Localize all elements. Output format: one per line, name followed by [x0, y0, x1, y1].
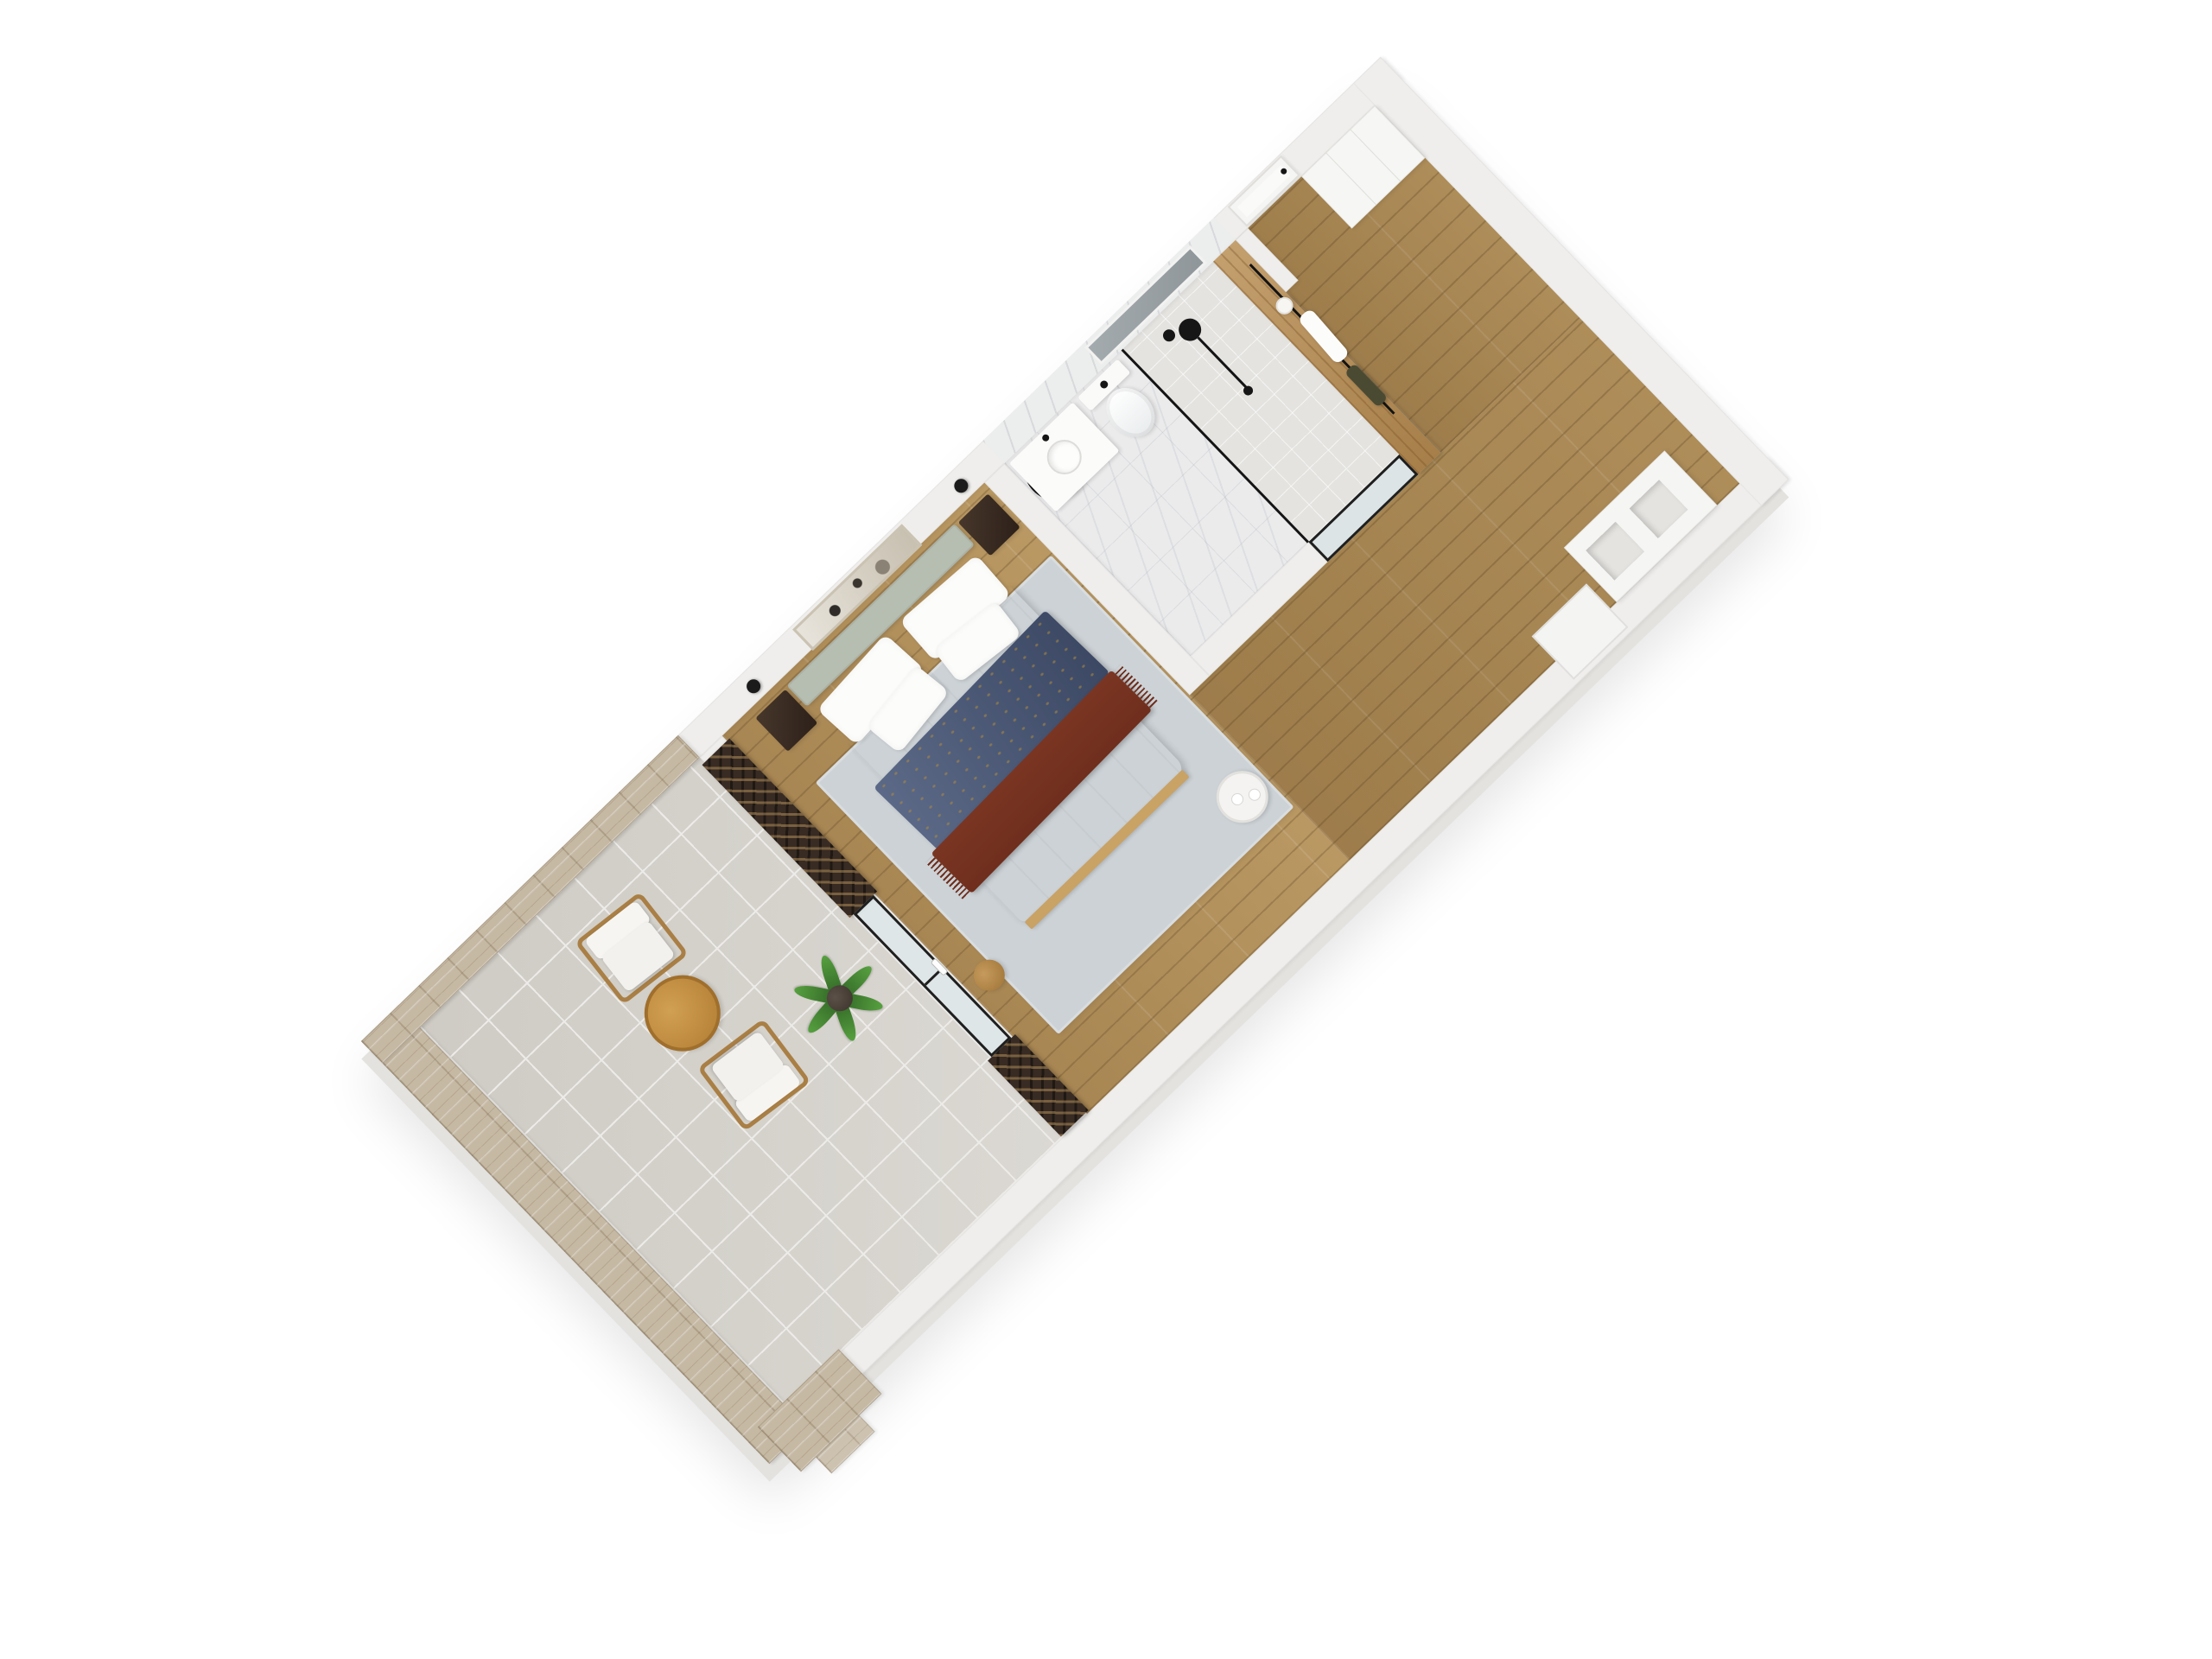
tray-cup — [1229, 791, 1246, 808]
render-canvas — [0, 0, 2212, 1659]
cubby-opening — [1586, 522, 1644, 581]
floor-plan-3d — [361, 57, 1789, 1464]
tray-cup — [1246, 786, 1263, 804]
cubby-opening — [1630, 480, 1688, 538]
wardrobe-seam — [1325, 152, 1376, 205]
wardrobe-seam — [1350, 129, 1401, 181]
